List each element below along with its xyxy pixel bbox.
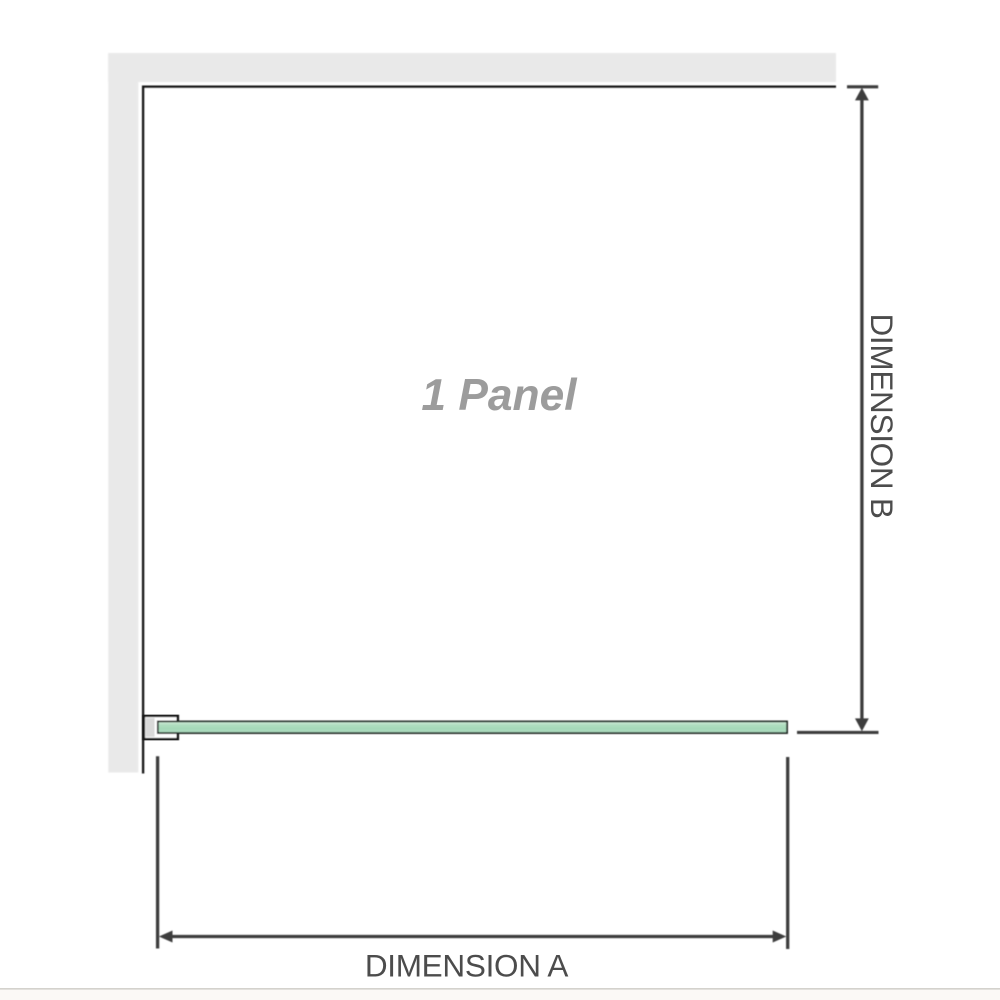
svg-text:DIMENSION B: DIMENSION B [864,313,900,518]
svg-text:1 Panel: 1 Panel [421,371,578,420]
svg-text:DIMENSION A: DIMENSION A [365,948,569,984]
